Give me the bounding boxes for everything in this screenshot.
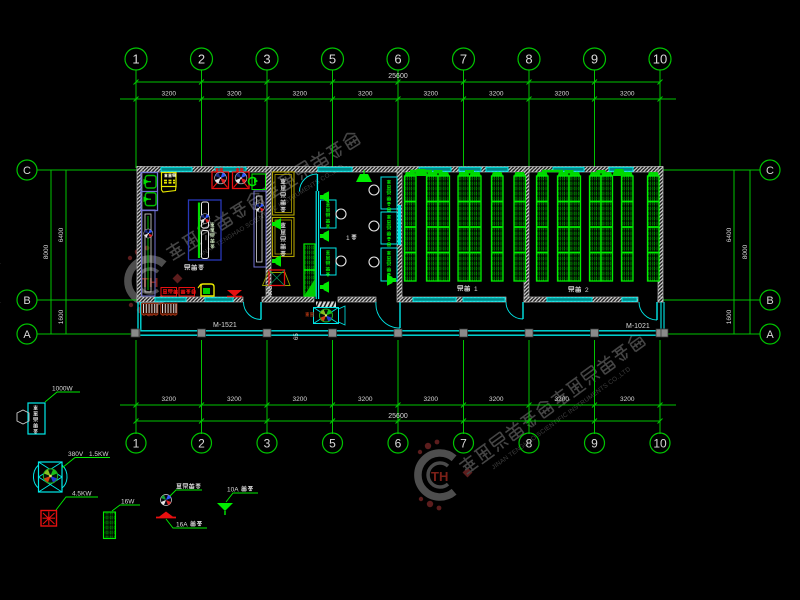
svg-text:8: 8	[526, 437, 533, 451]
svg-text:3200: 3200	[358, 396, 373, 403]
svg-text:8000: 8000	[43, 244, 50, 259]
svg-text:1000W: 1000W	[52, 386, 73, 393]
svg-text:A: A	[23, 329, 31, 341]
svg-text:3200: 3200	[424, 396, 439, 403]
svg-text:7: 7	[460, 437, 467, 451]
svg-text:10A: 10A	[227, 487, 239, 494]
svg-text:3200: 3200	[620, 396, 635, 403]
svg-text:2: 2	[198, 437, 205, 451]
svg-text:3200: 3200	[489, 396, 504, 403]
svg-text:6400: 6400	[726, 227, 733, 242]
svg-text:1: 1	[474, 286, 478, 293]
svg-text:5: 5	[329, 437, 336, 451]
svg-text:10: 10	[653, 52, 667, 67]
svg-text:2: 2	[585, 287, 589, 294]
svg-text:3200: 3200	[162, 396, 177, 403]
svg-text:3200: 3200	[424, 91, 439, 98]
svg-text:3200: 3200	[555, 91, 570, 98]
svg-text:8: 8	[525, 52, 532, 67]
svg-text:1: 1	[132, 52, 139, 67]
svg-text:3200: 3200	[227, 91, 242, 98]
svg-text:B: B	[23, 295, 30, 307]
svg-text:1.5KW: 1.5KW	[89, 451, 109, 458]
svg-text:5: 5	[329, 52, 336, 67]
svg-text:6400: 6400	[58, 227, 65, 242]
svg-text:9: 9	[591, 437, 598, 451]
svg-text:M-1021: M-1021	[626, 323, 650, 330]
svg-text:3: 3	[263, 52, 270, 67]
svg-text:65: 65	[294, 333, 300, 340]
svg-text:9: 9	[591, 52, 598, 67]
svg-text:3200: 3200	[293, 91, 308, 98]
svg-text:C: C	[23, 165, 31, 177]
svg-text:1: 1	[346, 235, 350, 242]
svg-text:2: 2	[198, 52, 205, 67]
svg-text:6: 6	[395, 437, 402, 451]
svg-text:25600: 25600	[388, 413, 408, 420]
svg-text:4.5KW: 4.5KW	[72, 491, 92, 498]
svg-text:1: 1	[133, 437, 140, 451]
svg-text:3200: 3200	[555, 396, 570, 403]
svg-text:3200: 3200	[358, 91, 373, 98]
svg-text:25600: 25600	[388, 73, 408, 80]
svg-text:B: B	[766, 295, 773, 307]
svg-text:10: 10	[653, 437, 667, 451]
svg-text:3200: 3200	[489, 91, 504, 98]
svg-text:1600: 1600	[726, 309, 733, 324]
svg-text:M-1521: M-1521	[213, 322, 237, 329]
svg-text:C: C	[766, 165, 774, 177]
svg-text:A: A	[766, 329, 774, 341]
svg-text:WS: WS	[267, 285, 274, 296]
svg-text:3200: 3200	[227, 396, 242, 403]
svg-text:3: 3	[264, 437, 271, 451]
svg-text:3200: 3200	[620, 91, 635, 98]
svg-text:380V: 380V	[68, 451, 84, 458]
svg-text:6: 6	[394, 52, 401, 67]
svg-text:7: 7	[460, 52, 467, 67]
svg-text:16W: 16W	[121, 499, 135, 506]
svg-text:8000: 8000	[742, 244, 749, 259]
svg-text:3200: 3200	[162, 91, 177, 98]
svg-text:1600: 1600	[58, 309, 65, 324]
svg-text:3200: 3200	[293, 396, 308, 403]
svg-text:16A: 16A	[176, 522, 188, 529]
